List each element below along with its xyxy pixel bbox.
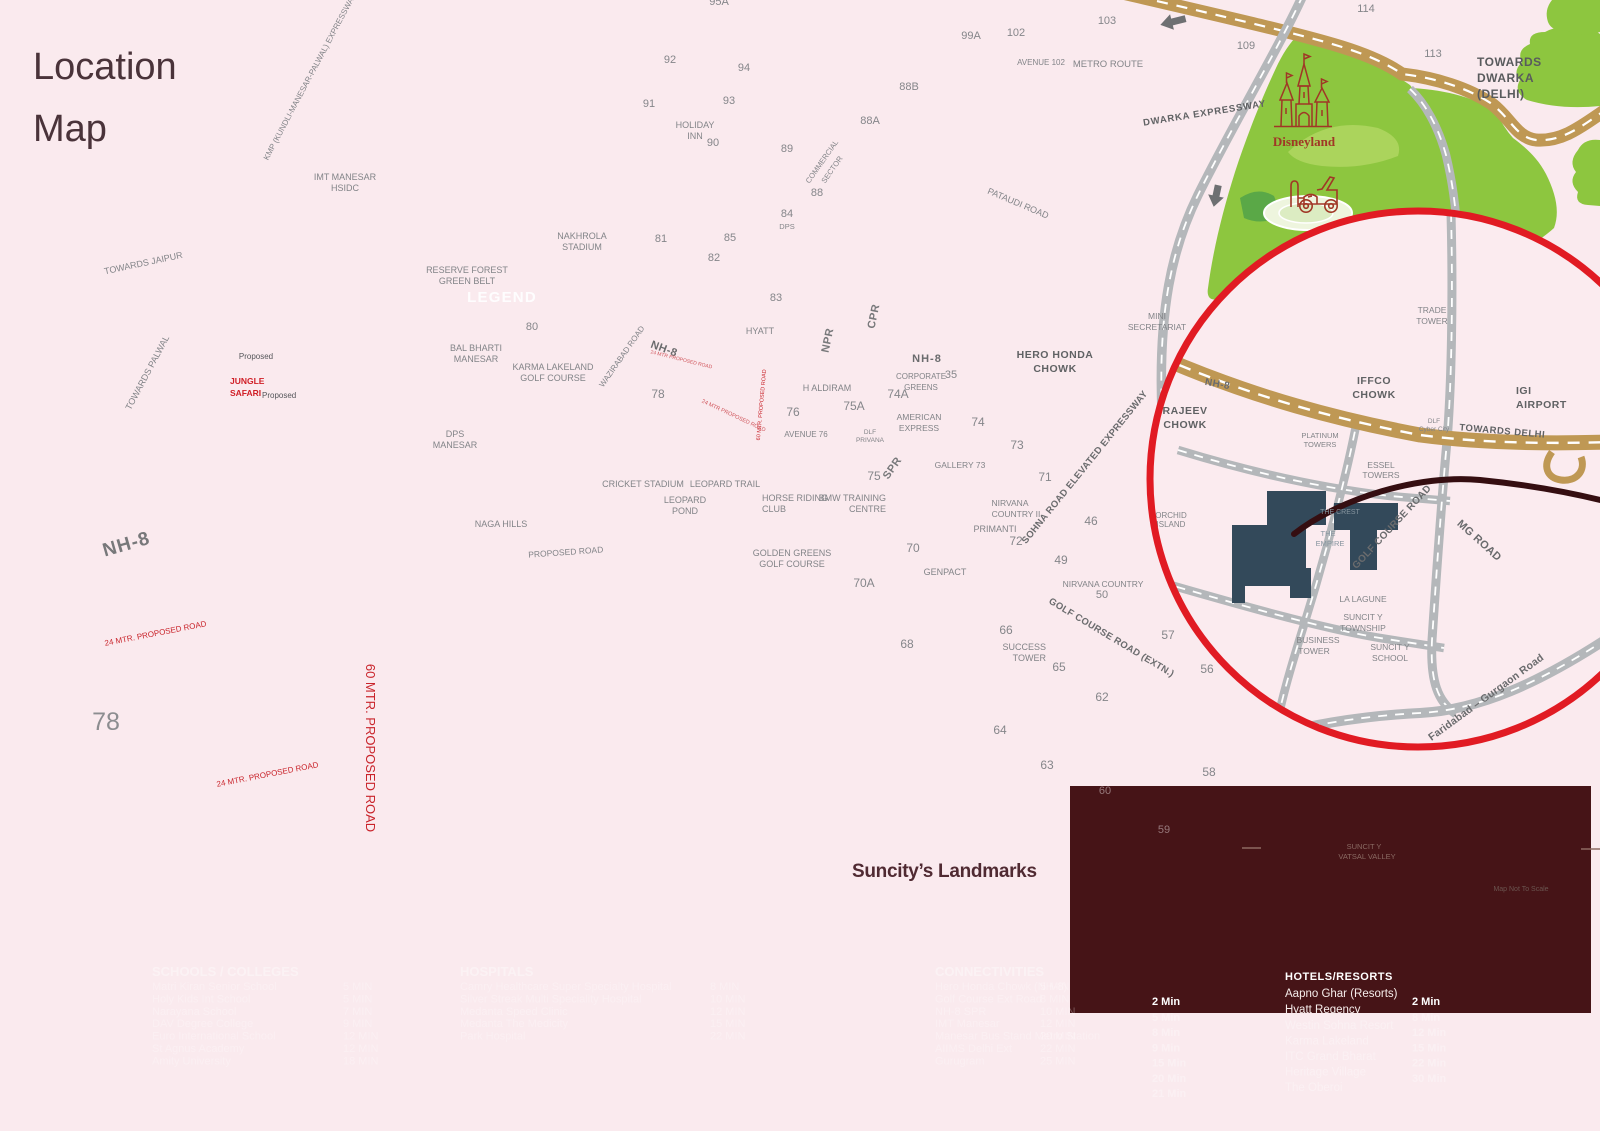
svg-text:Westin Sohna Resort: Westin Sohna Resort xyxy=(1285,1020,1394,1032)
svg-text:72: 72 xyxy=(1009,534,1023,548)
svg-text:MANESAR: MANESAR xyxy=(454,354,499,364)
svg-text:(DELHI): (DELHI) xyxy=(1477,87,1525,101)
svg-text:PRIMANTI: PRIMANTI xyxy=(973,524,1016,534)
svg-text:The Oberoi: The Oberoi xyxy=(1285,1082,1343,1094)
svg-text:Location: Location xyxy=(33,46,177,88)
svg-text:Disneyland: Disneyland xyxy=(1273,134,1336,149)
svg-text:DLF: DLF xyxy=(1428,418,1440,425)
svg-text:Map: Map xyxy=(33,108,107,150)
svg-text:70A: 70A xyxy=(853,576,874,590)
svg-text:89: 89 xyxy=(781,143,793,155)
svg-text:56: 56 xyxy=(1200,662,1214,676)
svg-text:Hyatt Regency: Hyatt Regency xyxy=(1285,1004,1361,1016)
svg-text:88B: 88B xyxy=(899,81,919,93)
svg-text:DLF: DLF xyxy=(864,429,876,436)
svg-text:81: 81 xyxy=(655,233,667,245)
svg-text:EXPRESS: EXPRESS xyxy=(899,423,939,433)
svg-text:ISLAND: ISLAND xyxy=(1157,520,1186,529)
svg-text:75A: 75A xyxy=(843,399,864,413)
svg-text:TOWER: TOWER xyxy=(1298,646,1329,656)
svg-text:DPS: DPS xyxy=(446,429,465,439)
svg-text:12 MIN: 12 MIN xyxy=(710,1006,746,1018)
svg-text:15 Min: 15 Min xyxy=(1152,1058,1187,1070)
svg-text:Euro International School: Euro International School xyxy=(152,1031,276,1043)
svg-text:GALLERY 73: GALLERY 73 xyxy=(935,460,986,470)
svg-text:8 MIN: 8 MIN xyxy=(710,981,739,993)
svg-text:30 Min: 30 Min xyxy=(1412,1073,1447,1085)
svg-text:5 MIN: 5 MIN xyxy=(1040,981,1069,993)
svg-text:94: 94 xyxy=(738,62,750,74)
svg-text:CHOWK: CHOWK xyxy=(1163,419,1206,431)
svg-text:Matri Kiran Senior School: Matri Kiran Senior School xyxy=(152,981,277,993)
svg-text:NIRVANA: NIRVANA xyxy=(991,498,1028,508)
svg-text:15 MIN: 15 MIN xyxy=(710,1018,746,1030)
svg-text:2 Min: 2 Min xyxy=(1412,996,1440,1008)
svg-text:EMPIRE: EMPIRE xyxy=(1316,539,1345,548)
svg-text:Gurugram: Gurugram xyxy=(935,1055,985,1067)
svg-text:H ALDIRAM: H ALDIRAM xyxy=(803,383,852,393)
svg-text:TOWERS: TOWERS xyxy=(1362,470,1399,480)
svg-text:AVENUE 102: AVENUE 102 xyxy=(1017,58,1065,67)
svg-text:Karma Lakeland: Karma Lakeland xyxy=(1285,1036,1369,1048)
svg-text:5 MIN: 5 MIN xyxy=(343,981,372,993)
svg-text:KARMA LAKELAND: KARMA LAKELAND xyxy=(512,362,594,372)
svg-text:NH-8 SPR: NH-8 SPR xyxy=(935,1006,986,1018)
svg-text:IFFCO: IFFCO xyxy=(1357,375,1391,387)
svg-text:9 Min: 9 Min xyxy=(1152,1042,1180,1054)
svg-text:22 MIN: 22 MIN xyxy=(1040,1043,1076,1055)
svg-text:8 Min: 8 Min xyxy=(1152,1027,1180,1039)
svg-text:DAV Degree College: DAV Degree College xyxy=(152,1018,253,1030)
svg-text:TOWNSHIP: TOWNSHIP xyxy=(1340,623,1386,633)
svg-text:Heritage Village: Heritage Village xyxy=(1285,1067,1366,1079)
svg-text:TOWARDS: TOWARDS xyxy=(1477,55,1542,69)
svg-text:20 MIN: 20 MIN xyxy=(1040,1031,1076,1043)
svg-text:60 MTR. PROPOSED ROAD: 60 MTR. PROPOSED ROAD xyxy=(363,664,378,832)
svg-text:HYATT: HYATT xyxy=(746,326,775,336)
svg-text:84: 84 xyxy=(781,208,793,220)
svg-text:SECRETARIAT: SECRETARIAT xyxy=(1128,322,1186,332)
svg-text:SAFARI: SAFARI xyxy=(230,388,261,398)
svg-text:25 MIN: 25 MIN xyxy=(1040,1055,1076,1067)
svg-text:LEOPARD TRAIL: LEOPARD TRAIL xyxy=(690,479,760,489)
svg-text:80: 80 xyxy=(526,321,538,333)
svg-text:Proposed: Proposed xyxy=(239,352,273,361)
svg-text:12 MIN: 12 MIN xyxy=(1040,1018,1076,1030)
svg-text:TRADE: TRADE xyxy=(1418,305,1447,315)
svg-text:NH-8: NH-8 xyxy=(912,353,942,365)
svg-text:83: 83 xyxy=(770,292,782,304)
svg-text:INN: INN xyxy=(687,131,703,141)
svg-text:SUNCIT Y: SUNCIT Y xyxy=(1343,612,1383,622)
svg-text:SCHOOL: SCHOOL xyxy=(1372,653,1408,663)
svg-text:RESERVE FOREST: RESERVE FOREST xyxy=(426,265,508,275)
svg-text:Cyber City: Cyber City xyxy=(1419,426,1450,433)
svg-text:CENTRE: CENTRE xyxy=(849,504,886,514)
svg-text:AVENUE 76: AVENUE 76 xyxy=(784,430,828,439)
svg-text:70: 70 xyxy=(906,541,920,555)
svg-text:88: 88 xyxy=(811,187,823,199)
svg-text:10 MIN: 10 MIN xyxy=(1040,1006,1076,1018)
svg-text:CLUB: CLUB xyxy=(762,504,786,514)
svg-text:Medanta The Medicity: Medanta The Medicity xyxy=(460,1018,569,1030)
svg-text:HSIDC: HSIDC xyxy=(331,183,360,193)
svg-text:ITC Grand Bharat: ITC Grand Bharat xyxy=(1285,1051,1377,1063)
svg-text:49: 49 xyxy=(1054,553,1068,567)
svg-text:88A: 88A xyxy=(860,115,880,127)
svg-text:IMT MANESAR: IMT MANESAR xyxy=(314,172,377,182)
svg-text:TOWER: TOWER xyxy=(1013,653,1047,663)
svg-text:GOLF COURSE: GOLF COURSE xyxy=(520,373,586,383)
svg-text:POND: POND xyxy=(672,506,699,516)
svg-text:60: 60 xyxy=(1099,785,1111,797)
svg-text:8 MIN: 8 MIN xyxy=(1040,993,1069,1005)
svg-text:5 Min: 5 Min xyxy=(1152,1012,1180,1024)
svg-text:Suncity’s Landmarks: Suncity’s Landmarks xyxy=(852,861,1037,882)
svg-text:113: 113 xyxy=(1424,48,1442,60)
svg-text:SUNCIT Y: SUNCIT Y xyxy=(1347,842,1382,851)
svg-text:ORCHID: ORCHID xyxy=(1155,511,1187,520)
svg-text:78: 78 xyxy=(92,708,120,736)
svg-text:MINI: MINI xyxy=(1148,311,1166,321)
svg-text:IMT Manesar: IMT Manesar xyxy=(935,1018,1000,1030)
svg-text:COUNTRY II: COUNTRY II xyxy=(992,509,1041,519)
svg-text:LEOPARD: LEOPARD xyxy=(664,495,707,505)
svg-text:20 Min: 20 Min xyxy=(1152,1073,1187,1085)
svg-text:BUSINESS: BUSINESS xyxy=(1297,635,1340,645)
svg-text:METRO ROUTE: METRO ROUTE xyxy=(1073,59,1143,70)
svg-text:HOLIDAY: HOLIDAY xyxy=(676,120,715,130)
svg-text:St Agnus Academy: St Agnus Academy xyxy=(152,1043,245,1055)
svg-text:12 Min: 12 Min xyxy=(1412,1027,1447,1039)
svg-text:THE CREST: THE CREST xyxy=(1320,509,1360,516)
svg-text:103: 103 xyxy=(1098,15,1116,27)
svg-text:SUCCESS: SUCCESS xyxy=(1002,642,1046,652)
svg-text:GREEN BELT: GREEN BELT xyxy=(439,276,496,286)
svg-text:99A: 99A xyxy=(961,30,981,42)
svg-text:7 MIN: 7 MIN xyxy=(343,1006,372,1018)
svg-text:AMERICAN: AMERICAN xyxy=(897,412,942,422)
svg-text:Camry Healthcare Super Special: Camry Healthcare Super Specialty Hospita… xyxy=(460,981,672,993)
svg-text:109: 109 xyxy=(1237,40,1255,52)
svg-text:Aapno Ghar (Resorts): Aapno Ghar (Resorts) xyxy=(1285,988,1398,1000)
svg-text:9 MIN: 9 MIN xyxy=(343,1018,372,1030)
svg-text:68: 68 xyxy=(900,637,914,651)
svg-text:65: 65 xyxy=(1052,660,1066,674)
svg-text:Narayana School: Narayana School xyxy=(152,1006,236,1018)
svg-text:66: 66 xyxy=(999,623,1013,637)
svg-text:NAGA HILLS: NAGA HILLS xyxy=(475,519,528,529)
svg-text:CORPORATE: CORPORATE xyxy=(896,372,946,381)
svg-text:IGI: IGI xyxy=(1516,385,1532,397)
svg-text:18 MIN: 18 MIN xyxy=(343,1055,379,1067)
svg-text:GOLDEN GREENS: GOLDEN GREENS xyxy=(753,548,832,558)
svg-text:ESSEL: ESSEL xyxy=(1367,460,1395,470)
svg-text:HOSPITALS: HOSPITALS xyxy=(460,964,534,979)
svg-text:CONNECTIVITIES: CONNECTIVITIES xyxy=(935,964,1044,979)
svg-text:22 MIN: 22 MIN xyxy=(710,1031,746,1043)
svg-text:AIRPORT: AIRPORT xyxy=(1516,399,1567,411)
svg-text:MANESAR: MANESAR xyxy=(433,440,478,450)
svg-text:21 Min: 21 Min xyxy=(1152,1088,1187,1100)
svg-text:STADIUM: STADIUM xyxy=(562,242,602,252)
svg-text:10 MIN: 10 MIN xyxy=(710,993,746,1005)
svg-text:73: 73 xyxy=(1010,438,1024,452)
svg-text:50: 50 xyxy=(1096,589,1108,601)
svg-text:PLATINUM: PLATINUM xyxy=(1301,431,1338,440)
svg-text:GOLF COURSE: GOLF COURSE xyxy=(759,559,825,569)
svg-text:62: 62 xyxy=(1095,690,1109,704)
svg-text:THE: THE xyxy=(1321,529,1336,538)
svg-text:92: 92 xyxy=(664,54,676,66)
svg-text:59: 59 xyxy=(1158,824,1170,836)
svg-text:85: 85 xyxy=(724,232,736,244)
svg-text:NAKHROLA: NAKHROLA xyxy=(557,231,607,241)
svg-text:CHOWK: CHOWK xyxy=(1033,363,1076,375)
svg-text:CHOWK: CHOWK xyxy=(1352,389,1395,401)
svg-text:35: 35 xyxy=(945,369,957,381)
svg-text:58: 58 xyxy=(1202,765,1216,779)
svg-text:90: 90 xyxy=(707,137,719,149)
svg-text:Medanta Speed Clinic: Medanta Speed Clinic xyxy=(460,1006,568,1018)
svg-text:VATSAL VALLEY: VATSAL VALLEY xyxy=(1338,852,1395,861)
svg-text:102: 102 xyxy=(1007,27,1025,39)
svg-text:64: 64 xyxy=(993,723,1007,737)
svg-text:Amity University: Amity University xyxy=(152,1055,231,1067)
svg-text:74A: 74A xyxy=(887,387,908,401)
svg-text:22 Min: 22 Min xyxy=(1412,1058,1447,1070)
svg-text:91: 91 xyxy=(643,98,655,110)
svg-text:75: 75 xyxy=(867,469,881,483)
svg-text:TOWER: TOWER xyxy=(1416,316,1447,326)
svg-text:JUNGLE: JUNGLE xyxy=(230,376,265,386)
svg-text:76: 76 xyxy=(786,405,800,419)
svg-text:15 Min: 15 Min xyxy=(1412,1042,1447,1054)
svg-text:Silver Streak Multi Speciality: Silver Streak Multi Speciality Hospital xyxy=(460,993,642,1005)
svg-text:8 Min: 8 Min xyxy=(1412,1012,1440,1024)
svg-text:GREENS: GREENS xyxy=(904,383,938,392)
svg-text:2 Min: 2 Min xyxy=(1152,996,1180,1008)
svg-text:DWARKA: DWARKA xyxy=(1477,71,1534,85)
svg-text:63: 63 xyxy=(1040,758,1054,772)
svg-text:LA LAGUNE: LA LAGUNE xyxy=(1339,594,1387,604)
svg-text:12 MIN: 12 MIN xyxy=(343,1043,379,1055)
svg-text:PRIVANA: PRIVANA xyxy=(856,437,885,444)
svg-text:BAL BHARTI: BAL BHARTI xyxy=(450,343,502,353)
svg-text:57: 57 xyxy=(1161,628,1175,642)
svg-text:114: 114 xyxy=(1357,3,1375,15)
svg-text:5 MIN: 5 MIN xyxy=(343,993,372,1005)
svg-text:DPS: DPS xyxy=(779,222,794,231)
svg-text:AIIMS Delhi Ext: AIIMS Delhi Ext xyxy=(935,1043,1012,1055)
svg-text:95A: 95A xyxy=(709,0,729,8)
svg-text:93: 93 xyxy=(723,95,735,107)
svg-text:71: 71 xyxy=(1038,470,1052,484)
svg-text:NIRVANA COUNTRY: NIRVANA COUNTRY xyxy=(1063,579,1144,589)
svg-text:Golf Course Ext Road: Golf Course Ext Road xyxy=(935,993,1042,1005)
svg-text:BMW TRAINING: BMW TRAINING xyxy=(819,493,886,503)
svg-text:HOTELS/RESORTS: HOTELS/RESORTS xyxy=(1285,971,1393,983)
svg-text:Park Hospital: Park Hospital xyxy=(460,1031,525,1043)
svg-text:12 MIN: 12 MIN xyxy=(343,1031,379,1043)
svg-text:TOWERS: TOWERS xyxy=(1304,440,1337,449)
svg-text:Proposed: Proposed xyxy=(262,391,296,400)
svg-text:Holy Kids Int School: Holy Kids Int School xyxy=(152,993,250,1005)
svg-text:74: 74 xyxy=(971,415,985,429)
svg-text:LEGEND: LEGEND xyxy=(467,289,537,306)
svg-text:RAJEEV: RAJEEV xyxy=(1162,405,1207,417)
svg-text:Map Not To Scale: Map Not To Scale xyxy=(1493,886,1548,893)
svg-text:SUNCIT Y: SUNCIT Y xyxy=(1370,642,1410,652)
svg-text:78: 78 xyxy=(651,387,665,401)
svg-text:46: 46 xyxy=(1084,514,1098,528)
svg-text:CRICKET STADIUM: CRICKET STADIUM xyxy=(602,479,684,489)
svg-text:82: 82 xyxy=(708,252,720,264)
svg-text:SCHOOLS / COLLEGES: SCHOOLS / COLLEGES xyxy=(152,964,299,979)
svg-text:GENPACT: GENPACT xyxy=(924,567,967,577)
svg-text:HERO HONDA: HERO HONDA xyxy=(1017,349,1094,361)
